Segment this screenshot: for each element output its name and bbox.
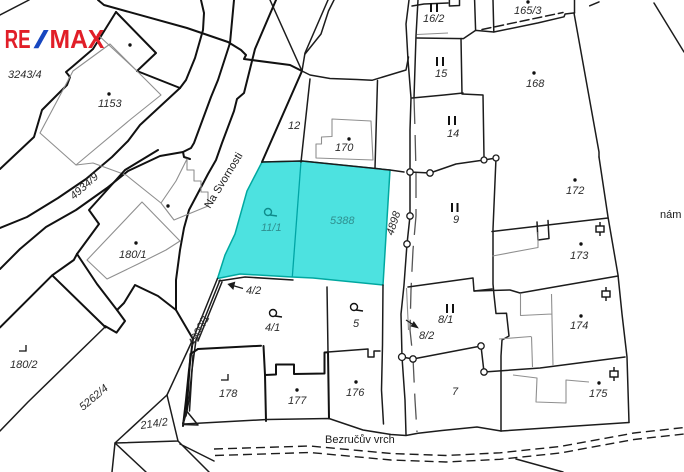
svg-text:14: 14 bbox=[447, 128, 459, 140]
svg-text:172: 172 bbox=[566, 185, 584, 197]
svg-text:5: 5 bbox=[353, 318, 360, 330]
svg-text:180/2: 180/2 bbox=[10, 359, 38, 371]
svg-text:RE: RE bbox=[5, 24, 31, 54]
svg-text:1153: 1153 bbox=[98, 98, 123, 110]
svg-text:11/1: 11/1 bbox=[261, 222, 282, 234]
svg-text:12: 12 bbox=[288, 120, 300, 132]
svg-text:165/3: 165/3 bbox=[514, 5, 542, 17]
svg-text:178: 178 bbox=[219, 388, 238, 400]
svg-text:Bezručův vrch: Bezručův vrch bbox=[325, 434, 395, 446]
svg-text:177: 177 bbox=[288, 395, 307, 407]
svg-text:MAX: MAX bbox=[50, 26, 105, 55]
svg-text:5388: 5388 bbox=[330, 215, 355, 227]
svg-text:4/1: 4/1 bbox=[265, 322, 280, 334]
svg-text:16/2: 16/2 bbox=[423, 13, 444, 25]
svg-text:175: 175 bbox=[589, 388, 608, 400]
svg-text:9: 9 bbox=[453, 214, 459, 226]
svg-text:168: 168 bbox=[526, 78, 545, 90]
svg-text:8/2: 8/2 bbox=[419, 330, 434, 342]
svg-text:8/1: 8/1 bbox=[438, 314, 453, 326]
svg-text:176: 176 bbox=[346, 387, 365, 399]
svg-text:7: 7 bbox=[452, 386, 459, 398]
svg-text:3243/4: 3243/4 bbox=[8, 69, 42, 81]
svg-text:180/1: 180/1 bbox=[119, 249, 147, 261]
svg-text:nám: nám bbox=[660, 209, 681, 221]
svg-text:173: 173 bbox=[570, 250, 589, 262]
svg-text:174: 174 bbox=[570, 320, 588, 332]
svg-text:4/2: 4/2 bbox=[246, 285, 261, 297]
svg-text:15: 15 bbox=[435, 68, 448, 80]
svg-text:170: 170 bbox=[335, 142, 354, 154]
